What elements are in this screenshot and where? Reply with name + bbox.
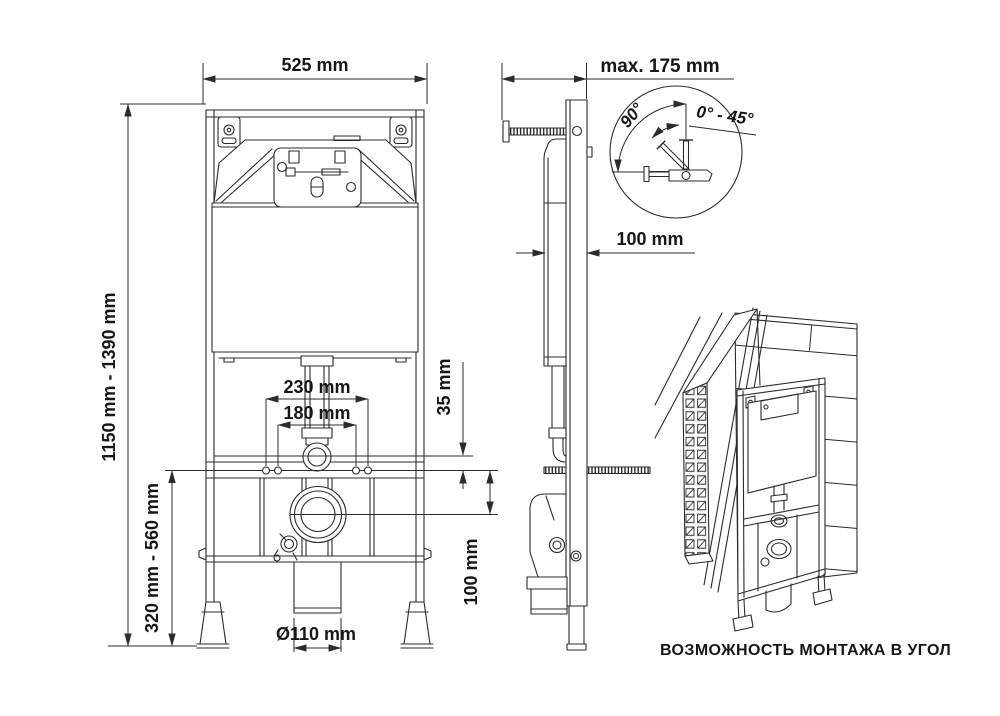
drain-socket (274, 487, 346, 562)
foot-left (197, 602, 229, 648)
iso-cistern (748, 391, 816, 493)
dim-flush-offset: 35 mm (434, 358, 463, 489)
iso-drain (767, 540, 791, 559)
dim-seat-label: 320 mm - 560 mm (142, 483, 162, 633)
technical-drawing: 525 mm 1150 mm - 1390 mm 320 mm - 560 mm… (0, 0, 1000, 716)
dim-outlet-offset-label: 100 mm (461, 538, 481, 605)
dim-seat-range: 320 mm - 560 mm (142, 471, 172, 647)
dim-drain-diameter-label: Ø110 mm (276, 624, 356, 644)
dim-bolt-inner-label: 180 mm (283, 403, 350, 423)
iso-foot-right (813, 589, 832, 605)
dim-frame-depth-label: 100 mm (616, 229, 683, 249)
cistern-profile (544, 139, 566, 366)
wall-bracket-left (218, 117, 240, 147)
dim-drain-diameter: Ø110 mm (276, 618, 356, 652)
foot-right (401, 602, 433, 648)
wall-bracket-right (390, 117, 412, 147)
iso-inlet (761, 558, 769, 566)
frame-column (566, 100, 587, 606)
flush-pipe-profile (549, 366, 566, 462)
dim-bolt-outer-label: 230 mm (283, 377, 350, 397)
dim-outlet-offset: 100 mm (461, 471, 490, 606)
dim-wall-max-label: max. 175 mm (600, 56, 719, 77)
column-bracket (587, 147, 592, 157)
cistern-access-panel (274, 148, 361, 207)
inlet-connector (281, 536, 297, 552)
dim-width: 525 mm (203, 55, 427, 104)
column-leg (567, 606, 586, 650)
isometric-view: ВОЗМОЖНОСТЬ МОНТАЖА В УГОЛ (655, 308, 951, 659)
caption: ВОЗМОЖНОСТЬ МОНТАЖА В УГОЛ (660, 642, 951, 659)
dim-height-label: 1150 mm - 1390 mm (99, 292, 119, 461)
dim-frame-depth: 100 mm (516, 229, 695, 253)
bowl-stud-rod (544, 467, 650, 474)
cistern (212, 136, 418, 362)
drain-stub (294, 562, 341, 613)
dim-width-label: 525 mm (281, 55, 348, 75)
side-knob-right (424, 548, 431, 560)
installation-drawing-page: 525 mm 1150 mm - 1390 mm 320 mm - 560 mm… (0, 0, 1000, 716)
angle-detail: 90° 0° - 45° (610, 86, 756, 218)
dim-flush-offset-label: 35 mm (434, 358, 454, 415)
iso-foot-left (733, 615, 753, 631)
iso-frame (733, 378, 832, 631)
side-knob-left (199, 548, 206, 560)
flush-outlet (303, 443, 331, 471)
